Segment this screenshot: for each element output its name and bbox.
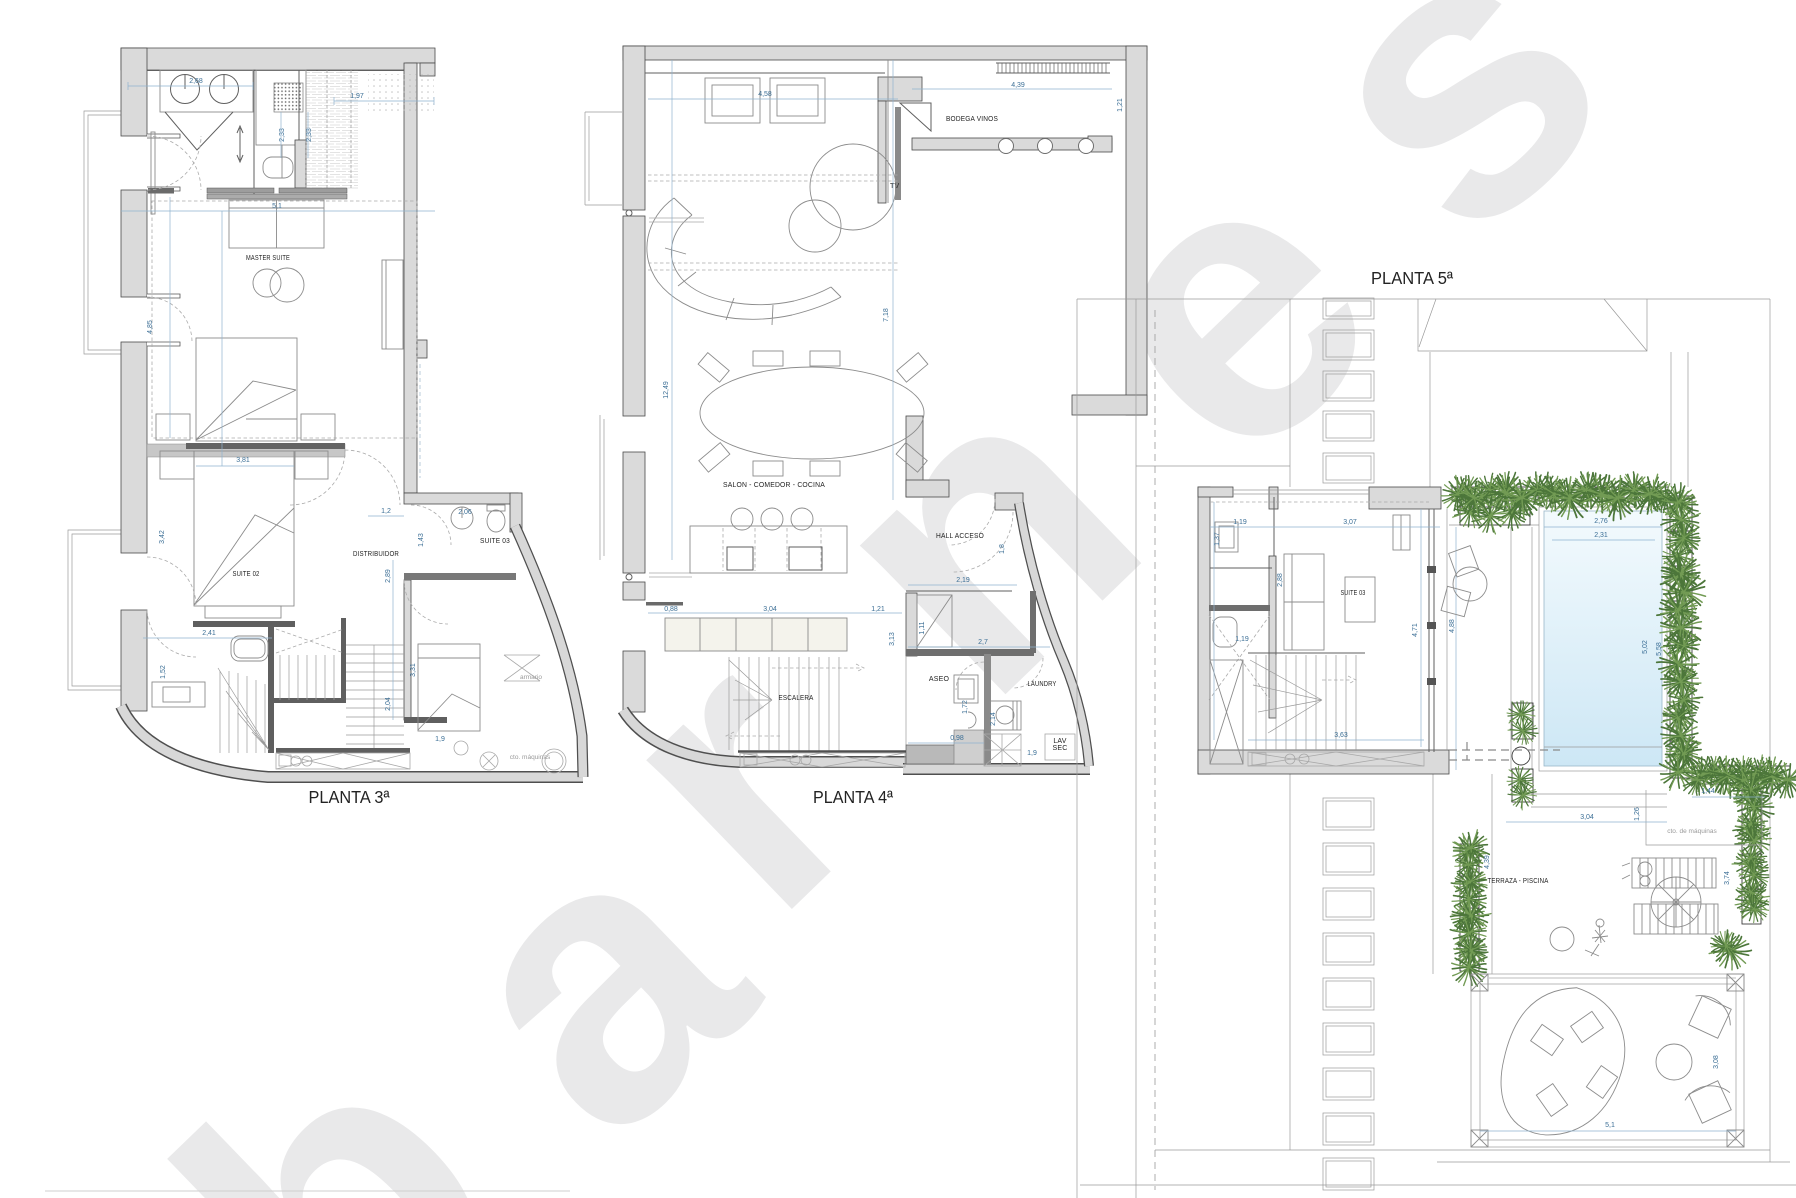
svg-text:1,72: 1,72	[962, 700, 969, 714]
svg-text:2,31: 2,31	[1594, 532, 1608, 539]
svg-text:1,37: 1,37	[1214, 532, 1221, 546]
svg-text:1,97: 1,97	[350, 93, 364, 100]
svg-text:3,07: 3,07	[1343, 519, 1357, 526]
svg-text:SEC: SEC	[1053, 745, 1068, 752]
svg-text:2,33: 2,33	[279, 128, 286, 142]
svg-text:1,21: 1,21	[1117, 98, 1124, 112]
svg-text:2,68: 2,68	[189, 78, 203, 85]
svg-text:3,63: 3,63	[1334, 732, 1348, 739]
svg-text:LAUNDRY: LAUNDRY	[1028, 681, 1057, 688]
svg-text:3,74: 3,74	[1724, 871, 1731, 885]
svg-text:3,81: 3,81	[236, 457, 250, 464]
svg-text:PLANTA 3ª: PLANTA 3ª	[309, 787, 390, 807]
svg-text:1,9: 1,9	[1027, 750, 1037, 757]
svg-text:DISTRIBUIDOR: DISTRIBUIDOR	[353, 551, 399, 558]
svg-text:SUITE 02: SUITE 02	[233, 571, 260, 578]
svg-text:0,98: 0,98	[950, 735, 964, 742]
svg-text:ASEO: ASEO	[929, 676, 950, 683]
svg-text:5,1: 5,1	[272, 203, 282, 210]
svg-text:3,08: 3,08	[1713, 1055, 1720, 1069]
svg-text:7,18: 7,18	[883, 308, 890, 322]
svg-text:PLANTA 4ª: PLANTA 4ª	[813, 787, 893, 807]
svg-text:HALL ACCESO: HALL ACCESO	[936, 533, 984, 540]
svg-text:4,58: 4,58	[758, 91, 772, 98]
svg-text:12,49: 12,49	[663, 381, 670, 399]
svg-text:TV: TV	[890, 183, 899, 190]
svg-text:1,21: 1,21	[871, 606, 885, 613]
svg-text:2,88: 2,88	[1277, 573, 1284, 587]
svg-text:2,04: 2,04	[385, 697, 392, 711]
svg-text:1,9: 1,9	[435, 736, 445, 743]
svg-text:2,19: 2,19	[956, 577, 970, 584]
svg-text:1,11: 1,11	[919, 621, 926, 634]
svg-text:5,02: 5,02	[1642, 640, 1649, 654]
svg-text:3,31: 3,31	[410, 663, 417, 677]
svg-text:3,04: 3,04	[1580, 814, 1594, 821]
svg-text:armario: armario	[520, 674, 542, 681]
svg-text:ESCALERA: ESCALERA	[779, 695, 814, 702]
svg-text:2,76: 2,76	[1594, 518, 1608, 525]
svg-text:2,33: 2,33	[306, 128, 313, 142]
svg-text:BODEGA VINOS: BODEGA VINOS	[946, 116, 998, 123]
svg-text:1,43: 1,43	[418, 533, 425, 547]
svg-text:2,89: 2,89	[385, 569, 392, 583]
svg-text:SUITE 03: SUITE 03	[1341, 590, 1366, 597]
svg-text:1,2: 1,2	[381, 508, 391, 515]
svg-text:2,14: 2,14	[990, 712, 997, 726]
svg-text:LAV: LAV	[1053, 738, 1066, 745]
svg-text:1,8: 1,8	[999, 544, 1006, 554]
svg-text:1,44: 1,44	[1701, 788, 1715, 795]
svg-text:4,85: 4,85	[147, 320, 154, 334]
svg-text:3,13: 3,13	[889, 632, 896, 646]
svg-text:4,39: 4,39	[1484, 855, 1491, 869]
svg-text:1,19: 1,19	[1235, 636, 1249, 643]
svg-text:MASTER SUITE: MASTER SUITE	[246, 255, 290, 262]
svg-text:PLANTA 5ª: PLANTA 5ª	[1371, 268, 1453, 288]
svg-text:1,19: 1,19	[1233, 519, 1247, 526]
svg-text:2,06: 2,06	[458, 509, 472, 516]
svg-text:2,41: 2,41	[202, 630, 216, 637]
svg-text:0,88: 0,88	[664, 606, 678, 613]
svg-text:3,04: 3,04	[763, 606, 777, 613]
svg-text:5,58: 5,58	[1656, 642, 1663, 656]
svg-text:SALON - COMEDOR - COCINA: SALON - COMEDOR - COCINA	[723, 482, 825, 489]
svg-text:4,39: 4,39	[1011, 82, 1025, 89]
svg-text:1,52: 1,52	[160, 665, 167, 679]
svg-text:1,26: 1,26	[1634, 807, 1641, 821]
svg-text:2,7: 2,7	[978, 639, 988, 646]
svg-text:SUITE 03: SUITE 03	[480, 538, 510, 545]
svg-text:3,42: 3,42	[159, 530, 166, 544]
svg-text:4,71: 4,71	[1412, 623, 1419, 637]
svg-text:5,1: 5,1	[1605, 1122, 1615, 1129]
svg-text:TERRAZA - PISCINA: TERRAZA - PISCINA	[1488, 878, 1549, 885]
svg-text:4,88: 4,88	[1449, 619, 1456, 633]
svg-text:cto. de máquinas: cto. de máquinas	[1667, 828, 1717, 835]
